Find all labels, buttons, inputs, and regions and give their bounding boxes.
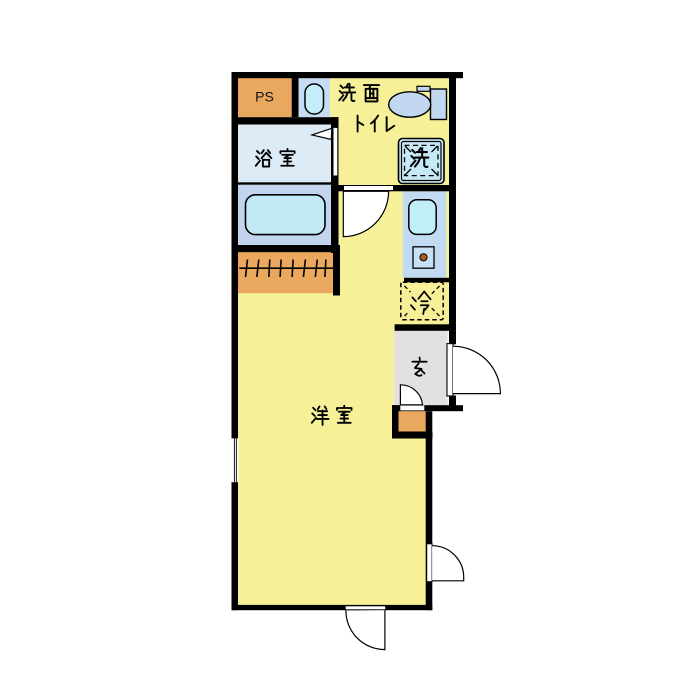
svg-text:PS: PS xyxy=(255,89,274,105)
